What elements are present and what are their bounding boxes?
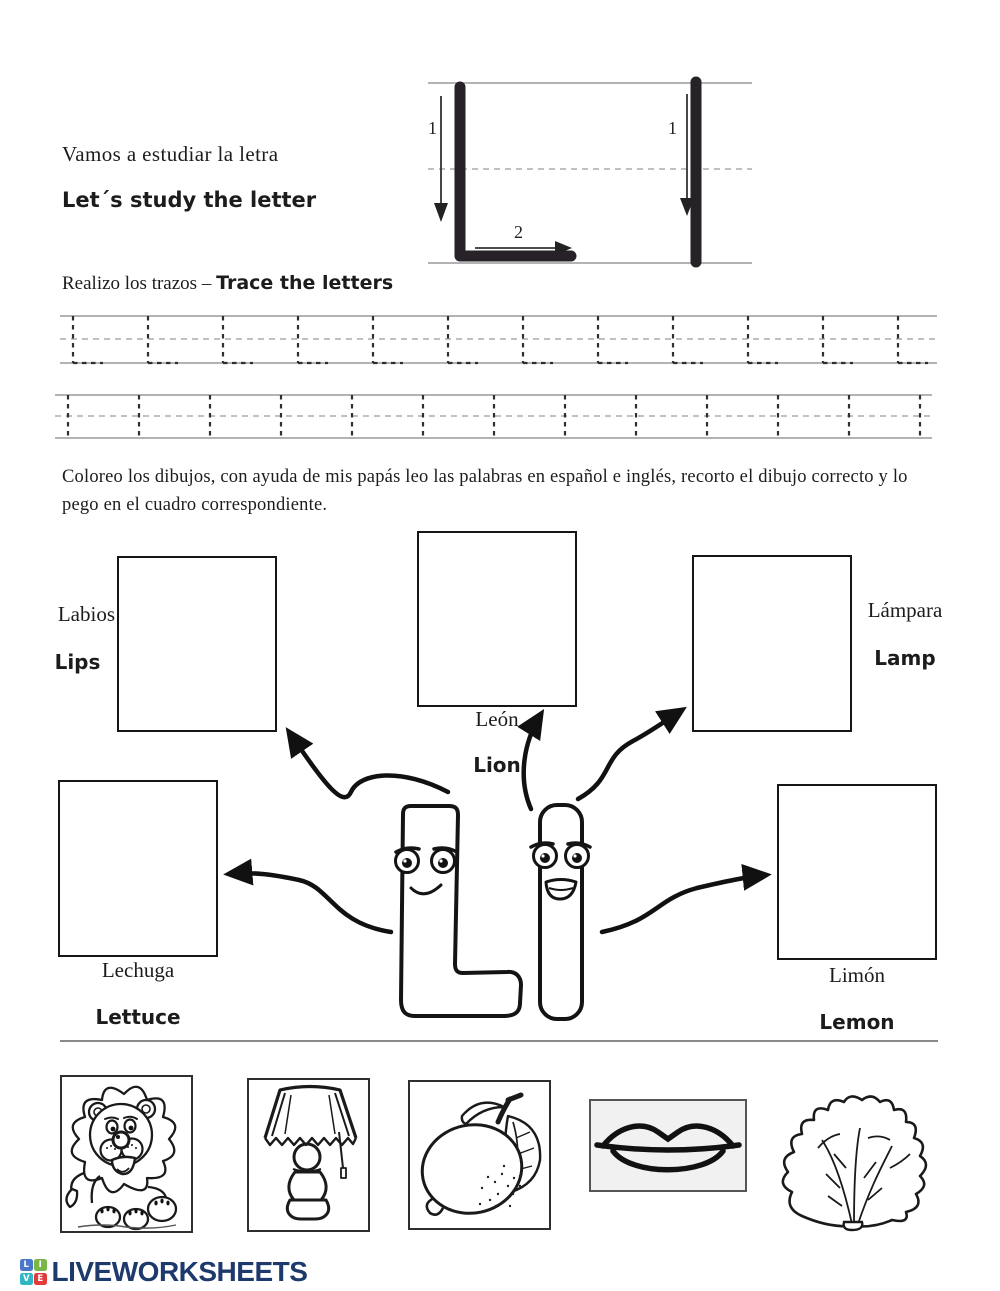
- matching-arrows: [229, 710, 766, 932]
- lamp-pull-chain: [339, 1132, 343, 1168]
- stroke-number-2: 2: [514, 222, 523, 242]
- lips-middle: [597, 1145, 739, 1150]
- lemon-art: [410, 1082, 549, 1228]
- dropbox-lampara[interactable]: [692, 555, 852, 732]
- title-english: Let´s study the letter: [62, 188, 316, 212]
- logo-tile-v: V: [20, 1273, 33, 1286]
- lion-drawing[interactable]: [60, 1075, 193, 1233]
- stroke-number-1-right: 1: [668, 118, 677, 138]
- label-lamp-en: Lamp: [850, 646, 960, 670]
- label-leon-es: León: [427, 707, 567, 732]
- trace-row-capital[interactable]: [55, 310, 945, 370]
- logo-tile-i: I: [34, 1259, 47, 1272]
- dropbox-labios[interactable]: [117, 556, 277, 732]
- arrow-to-lampara: [578, 710, 682, 799]
- liveworksheets-logo-icon: L I V E: [20, 1259, 47, 1286]
- dropbox-lechuga[interactable]: [58, 780, 218, 957]
- liveworksheets-brand: LIVEWORKSHEETS: [52, 1256, 308, 1288]
- lettuce-art: [772, 1088, 935, 1235]
- lion-nose: [113, 1132, 129, 1148]
- label-labios-es: Labios: [18, 602, 115, 627]
- dropbox-limon[interactable]: [777, 784, 937, 960]
- arrow-to-limon: [602, 875, 766, 932]
- trace-heading: Realizo los trazos – Trace the letters: [62, 272, 393, 295]
- lips-lower: [613, 1151, 723, 1170]
- capital-l-character: [396, 806, 522, 1016]
- trace-heading-es: Realizo los trazos –: [62, 273, 211, 294]
- lettuce-stalk: [844, 1222, 863, 1230]
- trace-row-lowercase[interactable]: [50, 390, 940, 445]
- footer: L I V E LIVEWORKSHEETS: [20, 1256, 307, 1288]
- instructions-text: Coloreo los dibujos, con ayuda de mis pa…: [62, 463, 940, 519]
- capital-l-glyph: [460, 87, 571, 256]
- lion-art: [62, 1077, 191, 1231]
- worksheet-page: Vamos a estudiar la letra Let´s study th…: [0, 0, 1000, 1291]
- lowercase-l-character: [531, 805, 590, 1019]
- separator-line: [60, 1040, 938, 1042]
- logo-tile-l: L: [20, 1259, 33, 1272]
- stroke-number-1-left: 1: [428, 118, 437, 138]
- lamp-art: [249, 1080, 368, 1230]
- lips-upper: [603, 1126, 733, 1146]
- label-lemon-en: Lemon: [787, 1010, 927, 1034]
- arrow-to-lechuga: [229, 873, 391, 932]
- lion-tail-tuft: [66, 1189, 77, 1207]
- lemon-drawing[interactable]: [408, 1080, 551, 1230]
- label-lettuce-en: Lettuce: [68, 1005, 208, 1029]
- dropbox-leon[interactable]: [417, 531, 577, 707]
- letter-stroke-diagram: 1 2 1: [420, 70, 760, 270]
- label-lampara-es: Lámpara: [850, 598, 960, 623]
- label-lion-en: Lion: [427, 753, 567, 777]
- label-lechuga-es: Lechuga: [68, 958, 208, 983]
- lips-art: [591, 1101, 745, 1190]
- lips-drawing[interactable]: [589, 1099, 747, 1192]
- logo-tile-e: E: [34, 1273, 47, 1286]
- lettuce-drawing[interactable]: [772, 1088, 935, 1235]
- stroke-arrows: [441, 94, 687, 248]
- label-lips-en: Lips: [40, 650, 115, 674]
- trace-heading-en: Trace the letters: [216, 272, 393, 294]
- label-limon-es: Limón: [787, 963, 927, 988]
- stroke-arrowheads: [434, 198, 694, 255]
- lamp-drawing[interactable]: [247, 1078, 370, 1232]
- title-spanish: Vamos a estudiar la letra: [62, 142, 278, 167]
- arrow-to-labios: [289, 732, 448, 797]
